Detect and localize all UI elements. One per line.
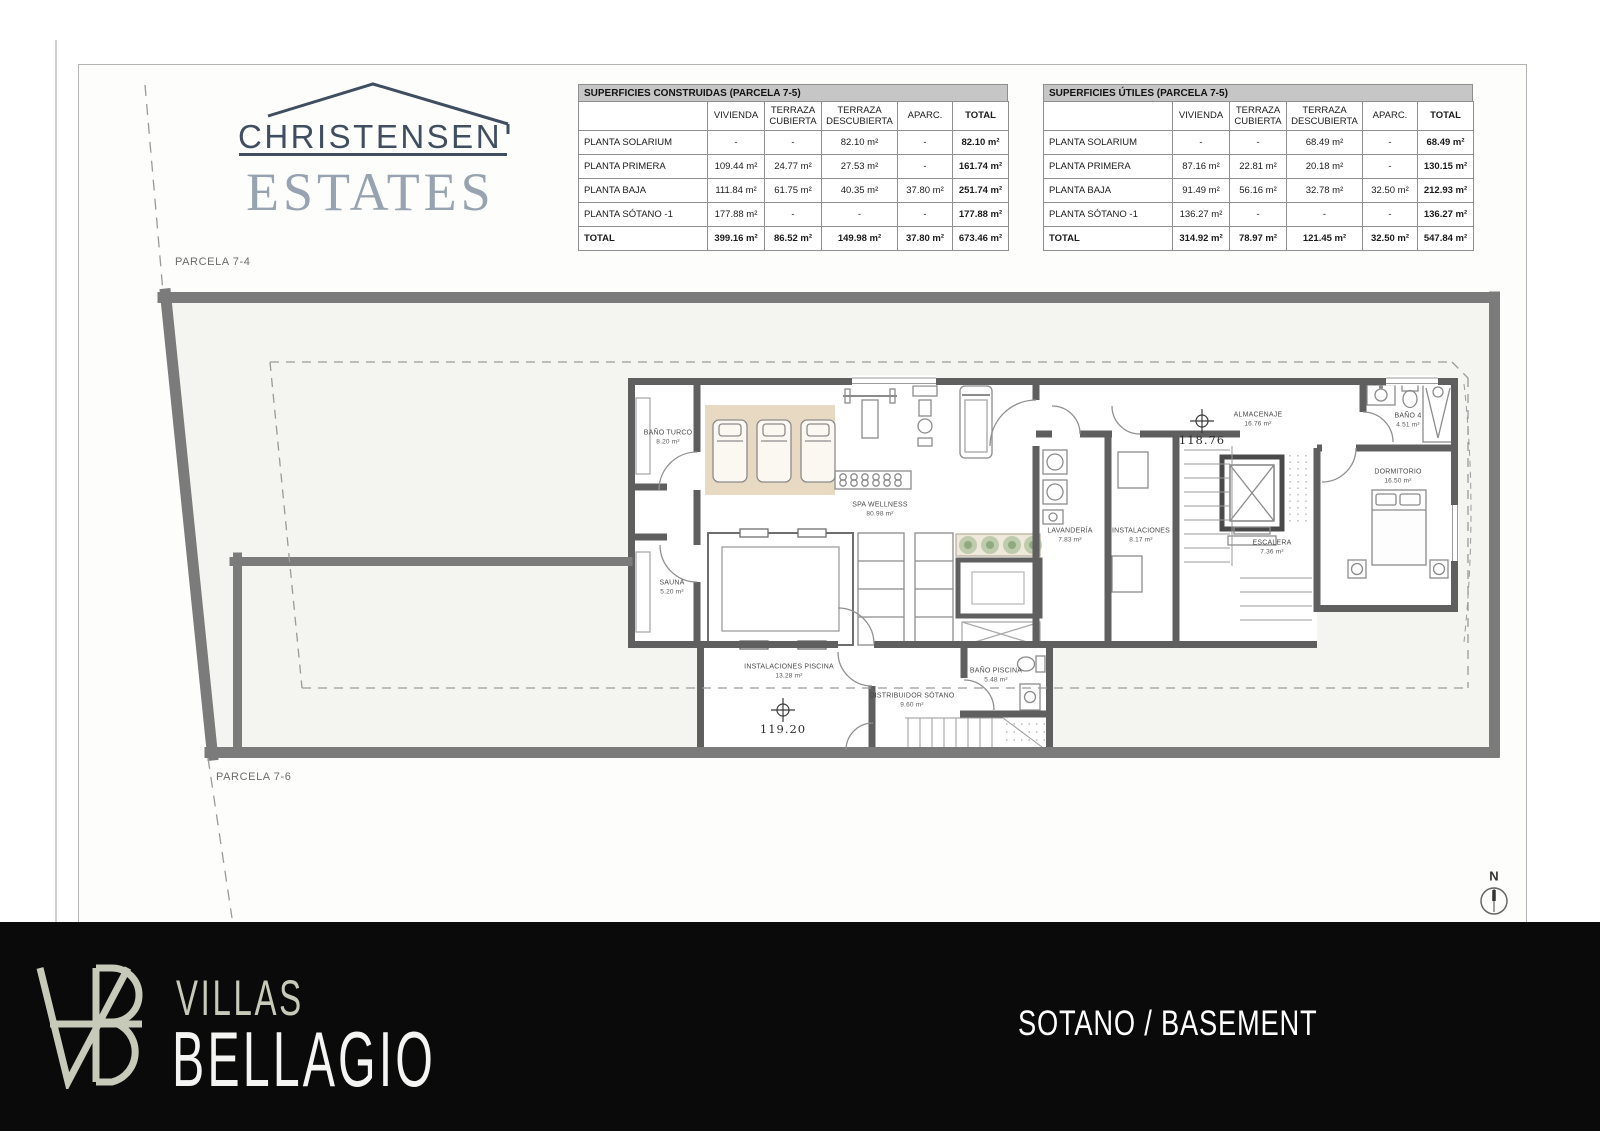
- north-label: N: [1489, 869, 1498, 884]
- column-header: [1044, 102, 1173, 131]
- row-label: PLANTA PRIMERA: [1044, 155, 1173, 179]
- column-header: TERRAZA DESCUBIERTA: [822, 102, 898, 131]
- parcela-label-top: PARCELA 7-4: [175, 256, 250, 268]
- area-value: -: [898, 203, 953, 227]
- area-value: -: [765, 203, 822, 227]
- table-row: TOTAL399.16 m²86.52 m²149.98 m²37.80 m²6…: [579, 227, 1009, 251]
- area-value: -: [708, 131, 765, 155]
- lounger-icon: [713, 420, 747, 482]
- level-value: 118.76: [1179, 433, 1225, 447]
- table-title: SUPERFICIES CONSTRUIDAS (PARCELA 7-5): [578, 84, 1008, 101]
- area-value: 20.18 m²: [1287, 155, 1363, 179]
- area-value: 161.74 m²: [953, 155, 1009, 179]
- area-value: 86.52 m²: [765, 227, 822, 251]
- column-header: VIVIENDA: [708, 102, 765, 131]
- room-label-inst-piscina: INSTALACIONES PISCINA13.28 m²: [744, 664, 834, 681]
- area-value: 37.80 m²: [898, 227, 953, 251]
- area-value: -: [1230, 203, 1287, 227]
- column-header: APARC.: [1363, 102, 1418, 131]
- area-value: 111.84 m²: [708, 179, 765, 203]
- room-label-bano-piscina: BAÑO PISCINA5.48 m²: [970, 668, 1022, 685]
- area-value: 212.93 m²: [1418, 179, 1474, 203]
- brand-bellagio: BELLAGIO: [172, 1014, 436, 1105]
- area-value: 37.80 m²: [898, 179, 953, 203]
- column-header: TOTAL: [953, 102, 1009, 131]
- surface-table: VIVIENDATERRAZA CUBIERTATERRAZA DESCUBIE…: [578, 101, 1009, 251]
- plan-sheet: PARCELA 7-4 PARCELA 7-6 N BAÑO TURCO8.20…: [0, 0, 1600, 1131]
- area-value: 24.77 m²: [765, 155, 822, 179]
- north-arrow-icon: [1481, 888, 1507, 914]
- room-label-dormitorio: DORMITORIO16.50 m²: [1374, 469, 1421, 486]
- area-value: -: [1230, 131, 1287, 155]
- area-value: 136.27 m²: [1418, 203, 1474, 227]
- area-value: 673.46 m²: [953, 227, 1009, 251]
- area-value: -: [898, 155, 953, 179]
- column-header: TERRAZA CUBIERTA: [1230, 102, 1287, 131]
- area-value: 82.10 m²: [822, 131, 898, 155]
- column-header: TERRAZA CUBIERTA: [765, 102, 822, 131]
- row-label: PLANTA SÓTANO -1: [1044, 203, 1173, 227]
- vb-monogram-icon: [30, 957, 162, 1089]
- area-value: 314.92 m²: [1173, 227, 1230, 251]
- area-value: 149.98 m²: [822, 227, 898, 251]
- area-value: -: [1287, 203, 1363, 227]
- area-value: 61.75 m²: [765, 179, 822, 203]
- row-label: PLANTA BAJA: [1044, 179, 1173, 203]
- room-label-bano-turco: BAÑO TURCO8.20 m²: [644, 430, 693, 447]
- area-value: 109.44 m²: [708, 155, 765, 179]
- room-label-sauna: SAUNA5.20 m²: [659, 580, 684, 597]
- table-row: PLANTA PRIMERA109.44 m²24.77 m²27.53 m²-…: [579, 155, 1009, 179]
- column-header: TERRAZA DESCUBIERTA: [1287, 102, 1363, 131]
- room-label-spa: SPA WELLNESS80.98 m²: [852, 502, 908, 519]
- row-label: PLANTA SOLARIUM: [1044, 131, 1173, 155]
- table-body: PLANTA SOLARIUM--68.49 m²-68.49 m²PLANTA…: [1044, 131, 1474, 251]
- area-value: 56.16 m²: [1230, 179, 1287, 203]
- lounger-icon: [801, 420, 835, 482]
- surface-table-constructed: SUPERFICIES CONSTRUIDAS (PARCELA 7-5) VI…: [578, 84, 1008, 251]
- logo-divider: [239, 153, 507, 156]
- floor-title: SOTANO / BASEMENT: [1018, 1004, 1317, 1044]
- column-header: APARC.: [898, 102, 953, 131]
- row-label: TOTAL: [579, 227, 708, 251]
- room-label-instalaciones: INSTALACIONES8.17 m²: [1112, 528, 1170, 545]
- area-value: 399.16 m²: [708, 227, 765, 251]
- table-header: VIVIENDATERRAZA CUBIERTATERRAZA DESCUBIE…: [579, 102, 1009, 131]
- lounger-icon: [757, 420, 791, 482]
- room-label-escalera: ESCALERA7.36 m²: [1253, 540, 1292, 557]
- surface-table: VIVIENDATERRAZA CUBIERTATERRAZA DESCUBIE…: [1043, 101, 1474, 251]
- table-row: PLANTA BAJA91.49 m²56.16 m²32.78 m²32.50…: [1044, 179, 1474, 203]
- area-value: 32.78 m²: [1287, 179, 1363, 203]
- area-value: -: [898, 131, 953, 155]
- area-value: 136.27 m²: [1173, 203, 1230, 227]
- room-label-bano4: BAÑO 44.51 m²: [1395, 413, 1422, 430]
- area-value: 130.15 m²: [1418, 155, 1474, 179]
- table-row: PLANTA BAJA111.84 m²61.75 m²40.35 m²37.8…: [579, 179, 1009, 203]
- row-label: PLANTA BAJA: [579, 179, 708, 203]
- column-header: VIVIENDA: [1173, 102, 1230, 131]
- area-value: 177.88 m²: [953, 203, 1009, 227]
- row-label: TOTAL: [1044, 227, 1173, 251]
- table-header: VIVIENDATERRAZA CUBIERTATERRAZA DESCUBIE…: [1044, 102, 1474, 131]
- column-header: TOTAL: [1418, 102, 1474, 131]
- room-label-distribuidor: DISTRIBUIDOR SÓTANO9.60 m²: [870, 693, 955, 710]
- area-value: 87.16 m²: [1173, 155, 1230, 179]
- row-label: PLANTA PRIMERA: [579, 155, 708, 179]
- area-value: 82.10 m²: [953, 131, 1009, 155]
- area-value: 68.49 m²: [1418, 131, 1474, 155]
- area-value: 40.35 m²: [822, 179, 898, 203]
- area-value: 121.45 m²: [1287, 227, 1363, 251]
- agency-logo-name: CHRISTENSEN: [238, 118, 502, 156]
- area-value: 27.53 m²: [822, 155, 898, 179]
- area-value: 251.74 m²: [953, 179, 1009, 203]
- room-label-lavanderia: LAVANDERÍA7.83 m²: [1047, 528, 1092, 545]
- area-value: 22.81 m²: [1230, 155, 1287, 179]
- area-value: 32.50 m²: [1363, 227, 1418, 251]
- area-value: -: [1363, 155, 1418, 179]
- area-value: -: [765, 131, 822, 155]
- surface-table-usable: SUPERFICIES ÚTILES (PARCELA 7-5) VIVIEND…: [1043, 84, 1473, 251]
- pool: [708, 529, 853, 649]
- agency-logo-tagline: ESTATES: [246, 161, 495, 223]
- table-row: PLANTA PRIMERA87.16 m²22.81 m²20.18 m²-1…: [1044, 155, 1474, 179]
- area-value: 547.84 m²: [1418, 227, 1474, 251]
- area-value: -: [1363, 131, 1418, 155]
- area-value: -: [1173, 131, 1230, 155]
- table-title: SUPERFICIES ÚTILES (PARCELA 7-5): [1043, 84, 1473, 101]
- area-value: -: [1363, 203, 1418, 227]
- area-value: -: [822, 203, 898, 227]
- parcela-label-bottom: PARCELA 7-6: [216, 771, 291, 783]
- row-label: PLANTA SÓTANO -1: [579, 203, 708, 227]
- area-value: 177.88 m²: [708, 203, 765, 227]
- table-row: PLANTA SOLARIUM--68.49 m²-68.49 m²: [1044, 131, 1474, 155]
- table-body: PLANTA SOLARIUM--82.10 m²-82.10 m²PLANTA…: [579, 131, 1009, 251]
- table-row: PLANTA SOLARIUM--82.10 m²-82.10 m²: [579, 131, 1009, 155]
- level-value: 119.20: [760, 722, 806, 736]
- table-row: PLANTA SÓTANO -1177.88 m²---177.88 m²: [579, 203, 1009, 227]
- area-value: 32.50 m²: [1363, 179, 1418, 203]
- table-row: TOTAL314.92 m²78.97 m²121.45 m²32.50 m²5…: [1044, 227, 1474, 251]
- area-value: 78.97 m²: [1230, 227, 1287, 251]
- column-header: [579, 102, 708, 131]
- brand-banner: VILLAS BELLAGIO SOTANO / BASEMENT: [0, 922, 1600, 1131]
- row-label: PLANTA SOLARIUM: [579, 131, 708, 155]
- room-label-almacenaje: ALMACENAJE16.76 m²: [1234, 412, 1283, 429]
- area-value: 91.49 m²: [1173, 179, 1230, 203]
- table-row: PLANTA SÓTANO -1136.27 m²---136.27 m²: [1044, 203, 1474, 227]
- area-value: 68.49 m²: [1287, 131, 1363, 155]
